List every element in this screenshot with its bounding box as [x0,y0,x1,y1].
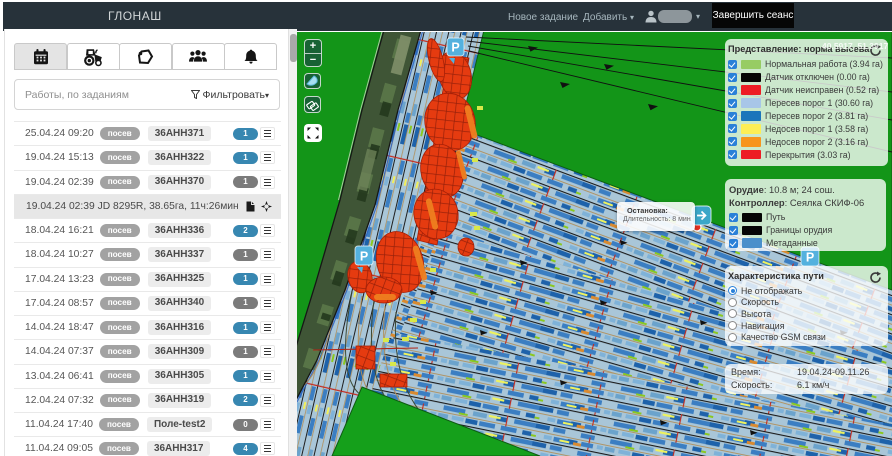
svg-text:P: P [451,41,459,55]
svg-text:P: P [360,250,368,264]
svg-text:P: P [806,251,814,265]
